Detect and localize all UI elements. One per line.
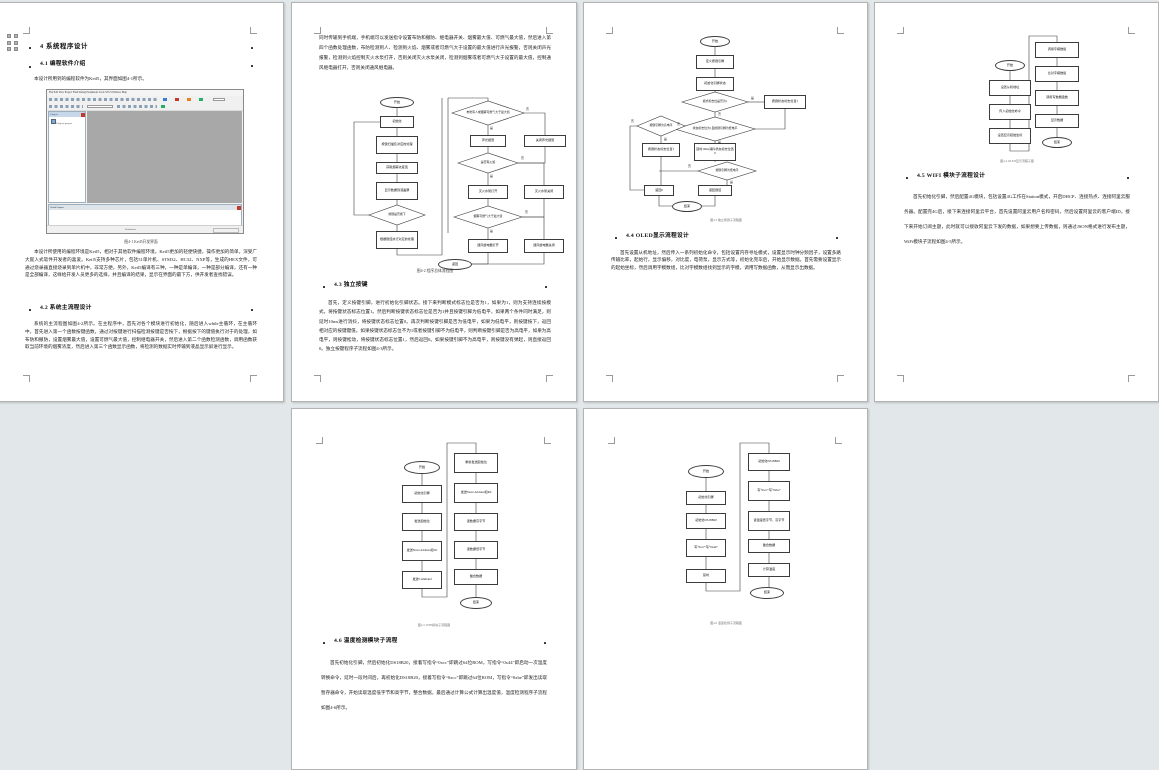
flow-node: 整合数据 bbox=[748, 539, 790, 553]
flow-node: 发送Command bbox=[402, 571, 442, 589]
flow-end: 结束 bbox=[1042, 137, 1072, 148]
flow-start: 开始 bbox=[404, 461, 440, 474]
toolbar-icon[interactable] bbox=[163, 98, 167, 102]
flow-node: 调用写数据函数 bbox=[1035, 90, 1079, 106]
section-heading-4-4: 4.4 OLED显示流程设计 bbox=[626, 233, 689, 240]
format-mark bbox=[906, 177, 908, 179]
flow-node: 初始化引脚 bbox=[402, 485, 442, 503]
flow-node: 设置显示起始坐标 bbox=[989, 128, 1031, 144]
body-paragraph: 首先，定义按键引脚，进行初始化引脚状态。接下来判断模式标志位是否为1，如果为1，… bbox=[319, 298, 551, 354]
target-select[interactable] bbox=[87, 105, 113, 109]
flow-node: 延时10ms消抖状态标志位置0 bbox=[694, 143, 736, 161]
format-mark bbox=[29, 309, 31, 311]
crop-mark bbox=[250, 375, 257, 382]
flow-decision: 按键引脚为低电平 bbox=[700, 163, 754, 179]
keil-status-bar: Simulation bbox=[47, 225, 243, 233]
format-mark bbox=[323, 642, 325, 644]
flow-start: 开始 bbox=[995, 60, 1025, 71]
flow-decision: 是否有火焰 bbox=[462, 155, 514, 171]
flow-node: 发送Slave Address和Rd bbox=[454, 483, 498, 503]
branch-label: 否 bbox=[631, 119, 634, 123]
flowchart-connectors bbox=[584, 409, 867, 769]
body-paragraph: 首先设置从机地址，然后传入一系列初始化命令，包括设置内存寻址模式，设置显示时钟分… bbox=[611, 249, 841, 271]
format-mark bbox=[323, 286, 325, 288]
figure-caption-4-6: 图4-6 温度检测子流程图 bbox=[611, 621, 841, 625]
crop-mark bbox=[23, 27, 30, 34]
format-mark bbox=[29, 66, 31, 68]
format-mark bbox=[251, 65, 253, 67]
toolbar-icon[interactable] bbox=[175, 98, 179, 102]
flow-node: 关闭声光报警 bbox=[524, 135, 566, 147]
drag-grip-icon[interactable] bbox=[7, 34, 18, 51]
flow-node: 显示数据到液晶屏 bbox=[376, 182, 418, 200]
branch-label: 否 bbox=[677, 122, 680, 126]
flow-start: 开始 bbox=[700, 36, 730, 47]
body-paragraph: 系统的主流程图如图4-2所示。在主程序中，首先对各个模块进行初始化，随后进入wh… bbox=[25, 320, 257, 351]
document-page-3[interactable]: 开始 定义按键引脚 初始化引脚状态 模式标志位是否为1 按键状态标志位置1 状态… bbox=[583, 2, 868, 402]
flow-node: 传入初始化命令 bbox=[989, 104, 1031, 120]
toolbar-icon[interactable] bbox=[187, 98, 191, 102]
branch-label: 是 bbox=[490, 126, 493, 130]
close-icon[interactable] bbox=[81, 113, 85, 117]
flow-node: 定义按键引脚 bbox=[696, 55, 734, 69]
flow-node: 灭火水泵关闭 bbox=[524, 185, 564, 199]
flow-node: 初始化 bbox=[380, 116, 414, 128]
project-tree-item[interactable]: Project: project bbox=[51, 119, 72, 125]
flow-node: 重新发送起始位 bbox=[454, 453, 498, 473]
flow-node: 显示数据 bbox=[1035, 114, 1079, 128]
branch-label: 是 bbox=[490, 229, 493, 233]
flow-node: 声光报警 bbox=[470, 135, 506, 147]
flow-node: 读温度低字节、高字节 bbox=[748, 511, 790, 531]
branch-label: 是 bbox=[751, 96, 754, 100]
flow-start: 开始 bbox=[380, 97, 414, 108]
section-heading-4-3: 4.3 独立按键 bbox=[334, 282, 368, 289]
flow-node: 计算温度 bbox=[748, 563, 790, 577]
keil-toolbar-2 bbox=[47, 103, 243, 111]
format-mark bbox=[29, 47, 31, 49]
chapter-heading: 4 系统程序设计 bbox=[40, 43, 88, 51]
flow-start: 开始 bbox=[688, 465, 724, 478]
section-heading-4-2: 4.2 系统主流程设计 bbox=[40, 305, 92, 312]
branch-label: 是 bbox=[718, 140, 721, 144]
document-page-4[interactable]: 开始 设置从机地址 传入初始化命令 设置显示起始坐标 调用字模数组 比对字模数组… bbox=[874, 2, 1159, 402]
document-page-5[interactable]: 开始 初始化引脚 发送起始位 发送Slave Address和Wr 发送Comm… bbox=[291, 408, 577, 770]
figure-caption-4-3: 图4-3 独立按键子流程图 bbox=[611, 218, 841, 222]
status-cell bbox=[213, 228, 239, 233]
branch-label: 是 bbox=[730, 180, 733, 184]
flow-node: 返回键值 bbox=[698, 185, 732, 196]
branch-label: 否 bbox=[718, 112, 721, 116]
document-page-1[interactable]: 4 系统程序设计 4.1 编程软件介绍 本设计所用到的编程软件为Keil5，其界… bbox=[0, 2, 284, 402]
flow-end: 结束 bbox=[750, 587, 784, 599]
flow-end: 结束 bbox=[672, 201, 702, 212]
branch-label: 是 bbox=[664, 137, 667, 141]
format-mark bbox=[251, 47, 253, 49]
figure-caption-4-4: 图4-4 OLED显示流程子图 bbox=[902, 159, 1132, 163]
document-page-2[interactable]: 同时传输到手机端，手机端可以发送指令设置布防和撤防、继电器开关、烟雾最大值、可燃… bbox=[291, 2, 577, 402]
format-mark bbox=[836, 237, 838, 239]
section-heading-4-1: 4.1 编程软件介绍 bbox=[40, 61, 86, 68]
toolbar-icons[interactable] bbox=[117, 105, 157, 109]
section-heading-4-5: 4.5 WIFI 模块子流程设计 bbox=[917, 173, 985, 180]
flow-node: 比对字模数组 bbox=[1035, 66, 1079, 82]
flow-node: 通风继电器关闭 bbox=[524, 239, 564, 253]
project-icon bbox=[51, 119, 56, 124]
status-text: Simulation bbox=[125, 228, 136, 231]
figure-caption-4-5: 图4-5 WIFI模块子流程图 bbox=[319, 623, 549, 627]
flow-node: 初始化引脚状态 bbox=[696, 77, 734, 91]
document-multipage-view: 4 系统程序设计 4.1 编程软件介绍 本设计所用到的编程软件为Keil5，其界… bbox=[0, 0, 1159, 764]
body-paragraph: 本设计所使用的编程环境是Keil5，相对于其他软件编程环境，Keil5更加的轻便… bbox=[25, 248, 257, 279]
crop-mark bbox=[250, 27, 257, 34]
keil-build-output-panel: Build Output bbox=[48, 204, 242, 227]
flow-node: 通风继电器打开 bbox=[468, 239, 508, 253]
format-mark bbox=[544, 642, 546, 644]
flow-decision: 状态标志位为1且按键引脚为低电平 bbox=[681, 119, 749, 139]
keil-project-panel: Project Project: project bbox=[48, 111, 86, 203]
flow-decision: 烟雾可燃气大于最大值 bbox=[458, 209, 518, 225]
flow-node: 按键扫描及对应的处理 bbox=[376, 136, 418, 154]
flow-node: 整合数据 bbox=[454, 569, 498, 585]
format-mark bbox=[1127, 177, 1129, 179]
body-paragraph: 首先初始化引脚，然后配置4G模块，包括设置4G工作在Station模式，开启DH… bbox=[904, 189, 1130, 249]
flow-node: 根据键值执行对应的处理 bbox=[376, 231, 418, 249]
toolbar-icon[interactable] bbox=[161, 105, 165, 109]
format-mark bbox=[251, 309, 253, 311]
flow-node: 灭火水泵打开 bbox=[468, 185, 508, 199]
flow-node: 发送起始位 bbox=[402, 513, 442, 531]
document-page-6[interactable]: 开始 初始化引脚 初始化DS18B20 写“0xcc”写“0x44” 延时 初始… bbox=[583, 408, 868, 770]
flow-decision: 布防有人或烟雾可燃气大于最大值 bbox=[456, 103, 520, 123]
flow-end: 结束 bbox=[460, 597, 492, 609]
section-heading-4-6: 4.6 温度检测模块子流程 bbox=[334, 638, 398, 645]
flow-node: 调用字模数组 bbox=[1035, 42, 1079, 58]
intro-paragraph: 本设计所用到的编程软件为Keil5，其界面如图4-1所示。 bbox=[25, 76, 257, 82]
toolbar-icons[interactable] bbox=[49, 105, 83, 109]
flow-node: 返回0 bbox=[644, 185, 674, 196]
figure-caption-4-1: 图4-1 Keil5开发界面 bbox=[25, 240, 257, 245]
flow-node: 读数据低字节 bbox=[454, 541, 498, 559]
flow-node: 延时 bbox=[686, 569, 726, 583]
keil-workspace[interactable] bbox=[87, 111, 242, 203]
flow-node: 写“0xcc”写“0x44” bbox=[686, 539, 726, 557]
branch-label: 是 bbox=[490, 174, 493, 178]
flow-node: 发送Slave Address和Wr bbox=[402, 541, 442, 561]
branch-label: 否 bbox=[521, 156, 524, 160]
flow-node: 初始化DS18B20 bbox=[686, 513, 726, 529]
flow-node: 获取烟雾浓度值 bbox=[376, 162, 418, 174]
keil5-screenshot-image[interactable]: File Edit View Project Flash Debug Perip… bbox=[46, 89, 244, 234]
branch-label: 否 bbox=[688, 164, 691, 168]
flow-node: 按键状态标志位置1 bbox=[642, 143, 680, 157]
flow-decision: 按键是否按下 bbox=[372, 207, 422, 223]
flow-node: 设置从机地址 bbox=[989, 80, 1031, 96]
format-mark bbox=[615, 237, 617, 239]
body-paragraph: 首先初始化引脚，然后初始化DS18B20，接着写指令“0xcc”即跳过64位RO… bbox=[321, 655, 547, 715]
format-mark bbox=[545, 286, 547, 288]
toolbar-icons[interactable] bbox=[49, 98, 159, 102]
branch-label: 否 bbox=[525, 210, 528, 214]
flow-node: 读数据高字节 bbox=[454, 513, 498, 531]
close-icon[interactable] bbox=[237, 206, 241, 210]
flow-decision: 按键引脚为高电平 bbox=[640, 118, 682, 134]
branch-label: 否 bbox=[526, 107, 529, 111]
toolbar-icon[interactable] bbox=[199, 98, 203, 102]
toolbar-search-box[interactable] bbox=[213, 98, 225, 102]
flow-node: 初始化引脚 bbox=[686, 491, 726, 505]
flow-decision: 模式标志位是否为1 bbox=[687, 94, 743, 110]
flow-node: 按键状态标志位置1 bbox=[764, 95, 806, 109]
build-output-title: Build Output bbox=[49, 205, 241, 210]
flow-node: 初始化DS18B20 bbox=[748, 453, 790, 471]
crop-mark bbox=[23, 375, 30, 382]
flow-node: 写“0xcc”写“0xbe” bbox=[748, 481, 790, 501]
figure-caption-4-2: 图4-2 程序总体流程图 bbox=[319, 269, 551, 274]
